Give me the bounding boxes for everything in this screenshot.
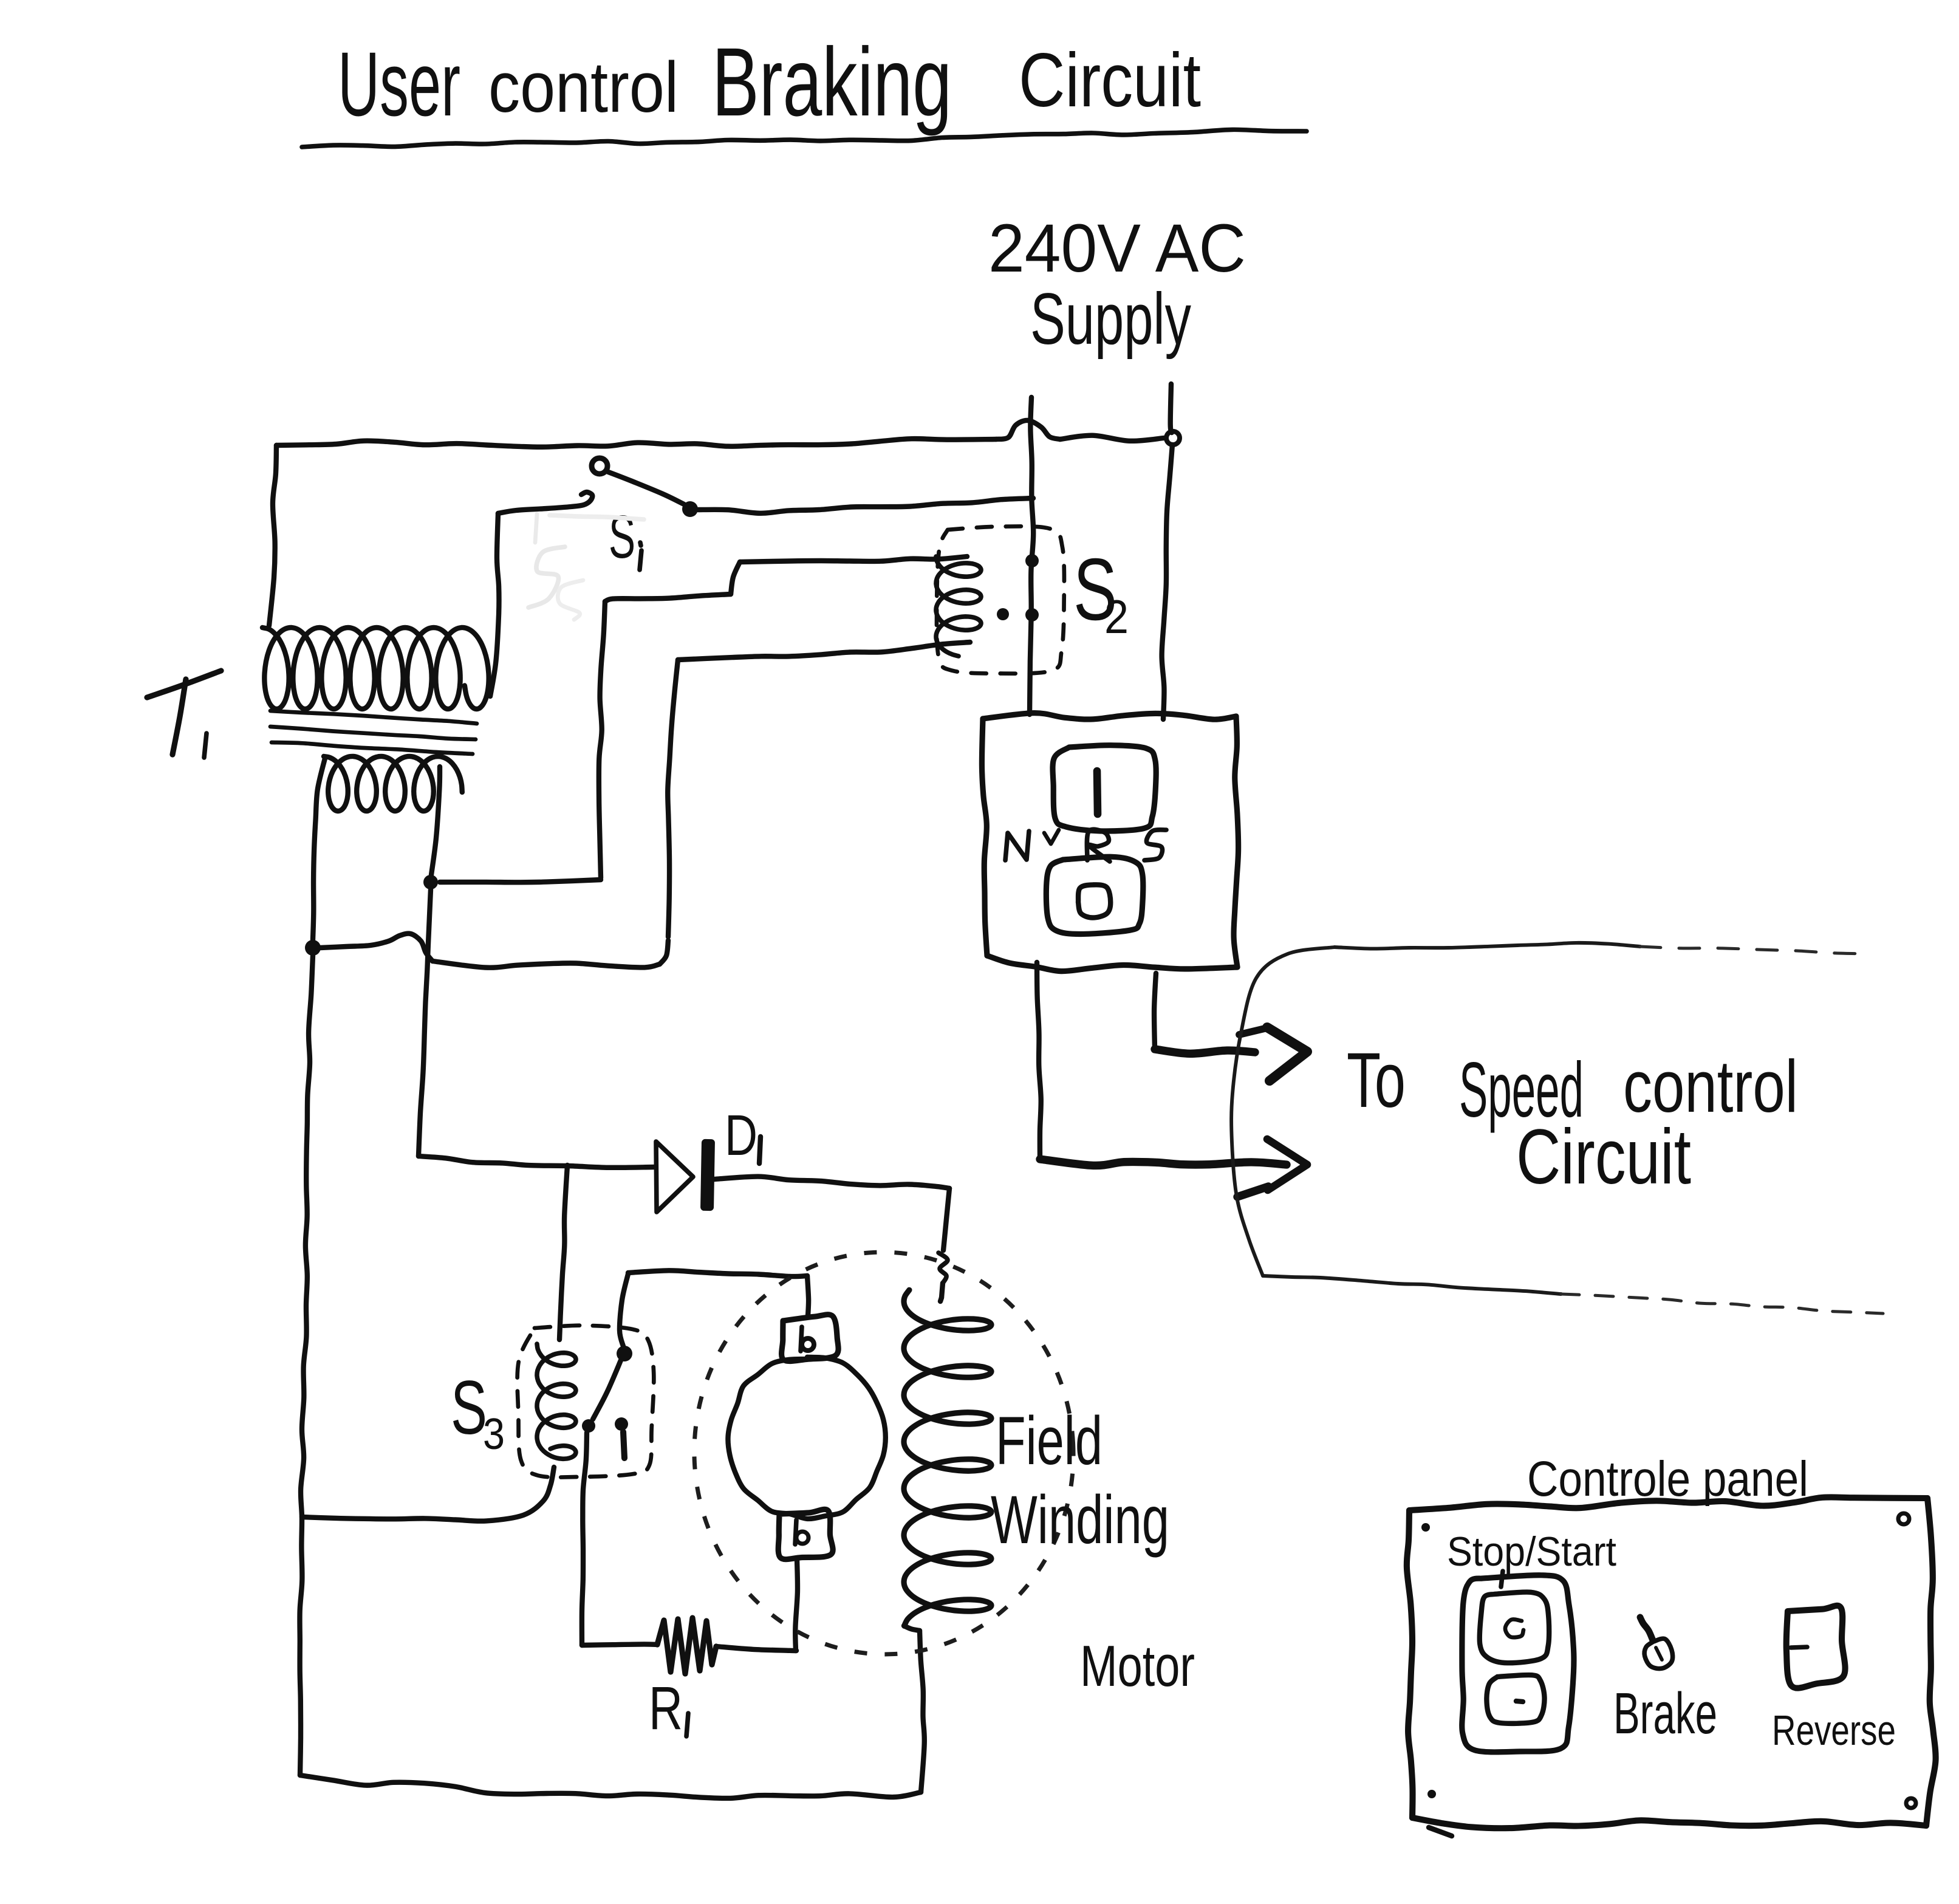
svg-text:Supply: Supply: [1030, 278, 1191, 360]
svg-text:D: D: [725, 1103, 757, 1168]
svg-text:User: User: [338, 33, 460, 135]
svg-text:Winding: Winding: [991, 1482, 1169, 1558]
svg-text:Circuit: Circuit: [1019, 38, 1201, 123]
svg-text:3: 3: [483, 1410, 505, 1459]
svg-text:Circuit: Circuit: [1516, 1114, 1691, 1200]
svg-text:Braking: Braking: [712, 27, 952, 136]
svg-text:R: R: [649, 1674, 683, 1742]
svg-text:Field: Field: [996, 1403, 1103, 1479]
svg-text:control: control: [488, 47, 679, 128]
svg-text:S: S: [609, 503, 635, 571]
svg-text:Brake: Brake: [1613, 1681, 1717, 1746]
svg-text:S: S: [451, 1366, 487, 1450]
svg-text:Controle panel: Controle panel: [1527, 1451, 1808, 1507]
svg-text:240V AC: 240V AC: [988, 210, 1246, 286]
svg-text:Reverse: Reverse: [1772, 1707, 1896, 1754]
svg-text:Motor: Motor: [1080, 1634, 1195, 1699]
svg-text:Stop/Start: Stop/Start: [1447, 1529, 1616, 1575]
svg-text:2: 2: [1104, 590, 1129, 643]
svg-text:To: To: [1347, 1037, 1406, 1124]
